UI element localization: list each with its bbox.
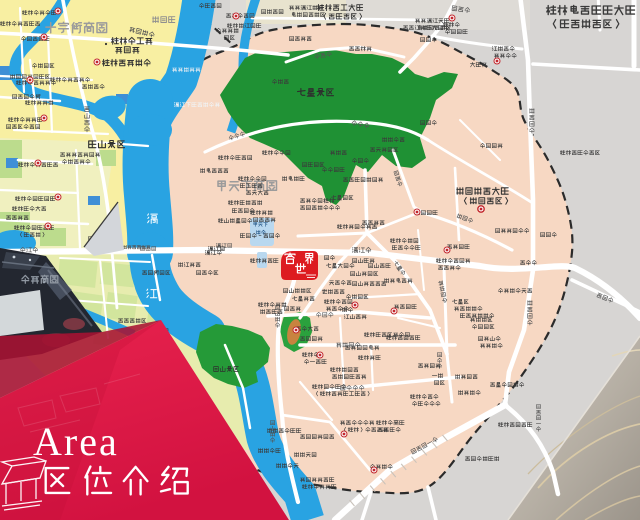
svg-text:Area: Area bbox=[33, 419, 119, 464]
